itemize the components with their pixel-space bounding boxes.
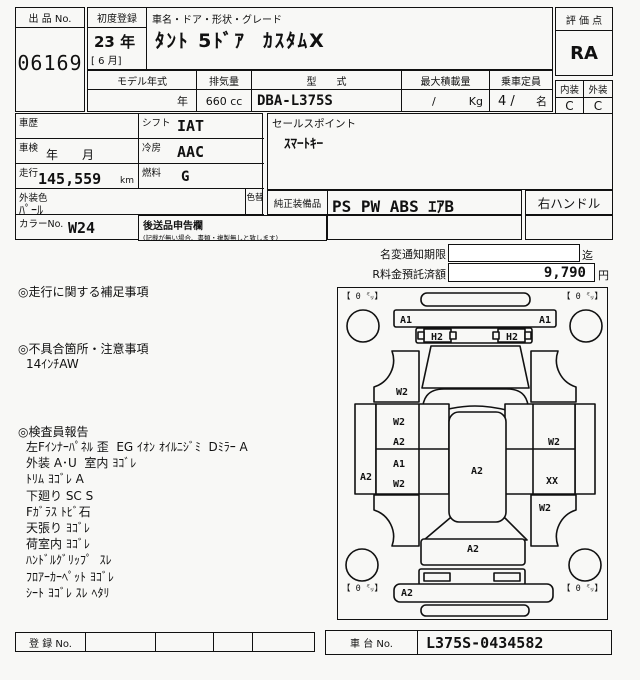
diagram-label: 【 0 ㍉】 <box>342 292 383 302</box>
interior-label: 内装 <box>556 81 584 97</box>
ac-value: AAC <box>177 143 204 161</box>
front-bumper-top <box>421 293 530 306</box>
first-registration-box: 初度登録 23 年 [ 6 月] <box>87 7 147 70</box>
diagram-label: A2 <box>471 466 483 477</box>
report-line: 外装 A･U 室内 ﾖｺﾞﾚ <box>26 455 248 471</box>
diagram-label: 【 0 ㍉】 <box>562 292 603 302</box>
car-damage-diagram: 【 0 ㍉】【 0 ㍉】【 0 ㍉】【 0 ㍉】 A1A1H2H2W2W2A2A… <box>337 287 608 620</box>
inspector-report-lines: 左Fｲﾝﾅｰﾊﾟﾈﾙ 歪 EG ｲｵﾝ ｵｲﾙﾆｼﾞﾐ Dﾐﾗｰ A外装 A･U… <box>26 439 248 601</box>
car-outline-svg: 【 0 ㍉】【 0 ㍉】【 0 ㍉】【 0 ㍉】 A1A1H2H2W2W2A2A… <box>338 288 607 619</box>
diagram-label: H2 <box>431 332 443 343</box>
report-line: Fｶﾞﾗｽ ﾄﾋﾞ石 <box>26 504 248 520</box>
diagram-label: A1 <box>393 459 405 470</box>
report-line: ﾄﾘﾑ ﾖｺﾞﾚ A <box>26 471 248 487</box>
mileage-unit: km <box>120 176 134 186</box>
wheel-front-right <box>570 310 602 342</box>
diagram-label: A1 <box>400 315 412 326</box>
front-bumper <box>394 310 556 327</box>
auction-no-label: 出 品 No. <box>16 8 84 28</box>
spec-capacity: 4 / 名 <box>490 90 552 112</box>
recolor-label: 色替 <box>246 191 264 203</box>
chassis-no-box: 車 台 No. L375S-0434582 <box>325 630 612 655</box>
later-doc-label: 後送品申告欄 <box>139 216 326 232</box>
marker-lamp <box>525 332 531 339</box>
reg-no-cell <box>253 633 314 651</box>
inspection-cell: 車検 年 月 <box>16 139 139 164</box>
spec-header-capacity: 乗車定員 <box>490 71 552 89</box>
hood <box>422 346 529 388</box>
diagram-label: 【 0 ㍉】 <box>562 584 603 594</box>
spec-displacement: 660 cc <box>197 90 252 112</box>
diagram-label: A2 <box>393 437 405 448</box>
taillight-left <box>424 573 450 581</box>
color-no-label: カラーNo. <box>19 216 63 230</box>
report-line: ｼｰﾄ ﾖｺﾞﾚ ｽﾚ ﾍﾀﾘ <box>26 585 248 601</box>
recycle-fee-value: 9,790 <box>544 265 586 281</box>
handle-box: 右ハンドル <box>525 190 613 215</box>
sales-point-label: セールスポイント <box>268 114 612 131</box>
fender-front-right <box>531 351 576 402</box>
auction-sheet: 出 品 No. 06169 初度登録 23 年 [ 6 月] 車名・ドア・形状・… <box>0 0 640 680</box>
interior-exterior-box: 内装 外装 C C <box>555 80 613 114</box>
sales-point-box: セールスポイント ｽﾏｰﾄｷｰ <box>267 113 613 190</box>
shift-label: シフト <box>142 115 171 129</box>
spec-max-load: / Kg <box>402 90 490 112</box>
diagram-label: W2 <box>396 387 408 398</box>
reg-no-cell <box>214 633 253 651</box>
marker-lamp <box>450 332 456 339</box>
diagram-label: A1 <box>539 315 551 326</box>
report-line: 下廻り SC S <box>26 488 248 504</box>
diagram-label: A2 <box>360 472 372 483</box>
diagram-label: H2 <box>506 332 518 343</box>
spec-model-code: DBA-L375S <box>252 90 402 112</box>
exterior-grade: C <box>584 98 612 114</box>
history-label: 車歴 <box>19 115 38 129</box>
mileage-note-heading: ◎走行に関する補足事項 <box>18 283 148 300</box>
report-line: ﾊﾝﾄﾞﾙｸﾞﾘｯﾌﾟ ｽﾚ <box>26 552 248 568</box>
grade-value: RA <box>556 31 612 75</box>
capacity-value: 4 / <box>498 94 515 109</box>
equipment-label-cell: 純正装備品 <box>267 190 328 215</box>
car-outline <box>346 293 602 616</box>
ac-cell: 冷房 AAC <box>139 139 264 164</box>
mileage-value: 145,559 <box>38 170 101 188</box>
report-line: 14ｲﾝﾁAW <box>26 356 79 372</box>
spec-header-model-year: モデル年式 <box>88 71 197 89</box>
recolor-cell: 色替 <box>246 189 264 215</box>
color-cell: 外装色 ﾊﾟｰﾙ <box>16 189 246 215</box>
later-doc-note: (記載が無い場合、書類・複製無しと致します) <box>139 232 326 242</box>
history-cell: 車歴 <box>16 114 139 139</box>
diagram-label: W2 <box>539 503 551 514</box>
name-change-suffix: 迄 <box>582 247 593 263</box>
capacity-unit: 名 <box>536 93 547 109</box>
equipment-value: PS PW ABS ｴｱB <box>332 193 454 217</box>
mileage-cell: 走行 145,559 km <box>16 164 139 189</box>
spec-table: モデル年式 排気量 型 式 最大積載量 乗車定員 年 660 cc DBA-L3… <box>87 70 553 112</box>
diagram-label: A2 <box>401 588 413 599</box>
inspector-heading: ◎検査員報告 <box>18 423 88 440</box>
equipment-label: 純正装備品 <box>274 196 322 210</box>
mileage-label: 走行 <box>19 165 38 179</box>
rear-bumper-lower <box>421 605 529 616</box>
wheel-rear-left <box>346 549 378 581</box>
report-line: 天張り ﾖｺﾞﾚ <box>26 520 248 536</box>
auction-no-box: 出 品 No. 06169 <box>15 7 85 112</box>
first-registration-label: 初度登録 <box>88 8 146 28</box>
chassis-no-label: 車 台 No. <box>326 631 418 654</box>
spec-header-model-code: 型 式 <box>252 71 402 89</box>
recycle-fee-field: 9,790 <box>448 263 595 282</box>
spec-header-displacement: 排気量 <box>197 71 252 89</box>
grade-box: 評 価 点 RA <box>555 7 613 76</box>
auction-no-value: 06169 <box>16 28 84 98</box>
later-doc-box: 後送品申告欄 (記載が無い場合、書類・複製無しと致します) <box>138 215 327 241</box>
fuel-value: G <box>181 169 189 185</box>
fuel-cell: 燃料 G <box>139 164 264 189</box>
report-line: 左Fｲﾝﾅｰﾊﾟﾈﾙ 歪 EG ｲｵﾝ ｵｲﾙﾆｼﾞﾐ Dﾐﾗｰ A <box>26 439 248 455</box>
diagram-label: W2 <box>548 437 560 448</box>
equipment-value-cell: PS PW ABS ｴｱB <box>327 190 522 215</box>
shift-cell: シフト IAT <box>139 114 264 139</box>
shift-value: IAT <box>177 117 204 135</box>
first-registration-month: [ 6 月] <box>88 52 146 67</box>
wheel-rear-right <box>569 549 601 581</box>
rocker-right <box>575 404 595 494</box>
marker-lamp <box>418 332 424 339</box>
grade-label: 評 価 点 <box>556 8 612 31</box>
taillight-right <box>494 573 520 581</box>
car-name-label: 車名・ドア・形状・グレード <box>147 8 552 26</box>
defect-heading: ◎不具合箇所・注意事項 <box>18 340 148 357</box>
spec-header-max-load: 最大積載量 <box>402 71 490 89</box>
inspection-label: 車検 <box>19 140 38 154</box>
recycle-fee-label: R料金預託済額 <box>330 266 446 282</box>
car-name-value: ﾀﾝﾄ 5ﾄﾞｱ ｶｽﾀﾑX <box>147 26 552 53</box>
handle-empty-cell <box>525 215 613 240</box>
inspection-value: 年 月 <box>46 146 94 163</box>
reg-no-cell <box>156 633 214 651</box>
defect-lines: 14ｲﾝﾁAW <box>26 356 79 372</box>
wheel-front-left <box>347 310 379 342</box>
registration-no-label: 登 録 No. <box>16 633 86 651</box>
color-no-cell: カラーNo. W24 <box>16 215 139 240</box>
first-registration-year: 23 年 <box>88 28 146 52</box>
interior-grade: C <box>556 98 584 114</box>
report-line: ﾌﾛｱｰｶｰﾍﾟｯﾄ ﾖｺﾞﾚ <box>26 569 248 585</box>
diagram-label: W2 <box>393 417 405 428</box>
max-load-slash: / <box>432 95 436 108</box>
diagram-label: XX <box>546 476 558 487</box>
registration-no-row: 登 録 No. <box>15 632 315 652</box>
name-change-field <box>448 244 580 262</box>
fuel-label: 燃料 <box>142 165 161 179</box>
diagram-label: W2 <box>393 479 405 490</box>
ac-label: 冷房 <box>142 140 161 154</box>
handle-value: 右ハンドル <box>538 193 601 212</box>
name-change-label: 名変通知期限 <box>330 246 446 262</box>
report-line: 荷室内 ﾖｺﾞﾚ <box>26 536 248 552</box>
max-load-unit: Kg <box>469 95 483 108</box>
marker-lamp <box>493 332 499 339</box>
car-name-box: 車名・ドア・形状・グレード ﾀﾝﾄ 5ﾄﾞｱ ｶｽﾀﾑX <box>146 7 553 70</box>
recycle-fee-suffix: 円 <box>598 267 609 283</box>
fender-rear-left <box>374 495 419 546</box>
reg-no-cell <box>86 633 156 651</box>
equipment-empty-cell <box>327 215 522 240</box>
diagram-label: 【 0 ㍉】 <box>342 584 383 594</box>
exterior-label: 外装 <box>584 81 612 97</box>
sales-point-value: ｽﾏｰﾄｷｰ <box>268 131 612 152</box>
fender-rear-right <box>531 495 576 546</box>
spec-model-year: 年 <box>88 90 197 112</box>
color-no-value: W24 <box>68 219 95 237</box>
rear-bumper <box>394 584 553 602</box>
chassis-no-value: L375S-0434582 <box>418 631 611 654</box>
diagram-label: A2 <box>467 544 479 555</box>
